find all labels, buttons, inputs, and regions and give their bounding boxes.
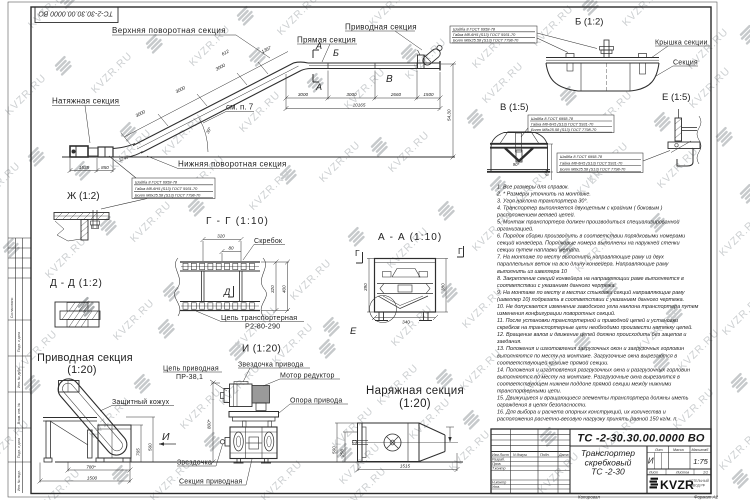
svg-text:N докум.: N докум. [513,453,528,457]
svg-text:KVZR.RU: KVZR.RU [111,297,157,343]
svg-text:KVZR.RU: KVZR.RU [237,89,283,135]
svg-text:Транспортер: Транспортер [581,448,635,458]
svg-text:KVZR.RU: KVZR.RU [160,112,206,158]
svg-text:KVZR.RU: KVZR.RU [687,65,733,111]
svg-text:KVZR.RU: KVZR.RU [720,292,750,338]
svg-text:1500: 1500 [87,476,98,481]
svg-text:Секция приводная: Секция приводная [179,479,242,486]
svg-text:Натяжная секция: Натяжная секция [52,97,119,106]
svg-text:скребков на транспортерные цеп: скребков на транспортерные цепи необходи… [497,324,693,331]
svg-text:3. Угол наклона транспортера: 3. Угол наклона транспортера 30°. [497,198,588,204]
svg-text:Защитный кожух: Защитный кожух [112,398,170,406]
svg-text:параллельных веток на всю длин: параллельных веток на всю длину конвейер… [497,261,669,268]
svg-text:И: И [648,457,654,466]
svg-text:Наряжная секция: Наряжная секция [366,385,464,397]
svg-text:Шайба 8 ГОСТ 6958-78: Шайба 8 ГОСТ 6958-78 [560,154,603,159]
svg-text:KVZR.RU: KVZR.RU [0,160,23,206]
svg-text:Масса: Масса [673,448,684,452]
svg-text:(1:20): (1:20) [399,398,431,410]
svg-text:16. Для выбора и расчета опор: 16. Для выбора и расчета опорных констру… [497,409,666,416]
svg-text:Т.контр: Т.контр [492,467,506,471]
svg-text:Листов: Листов [675,471,689,475]
svg-text:Д - Д (1:2): Д - Д (1:2) [50,278,102,289]
svg-text:Верхняя поворотная секция: Верхняя поворотная секция [112,26,226,35]
svg-text:Б: Б [333,48,339,58]
svg-text:Взам. инв. №: Взам. инв. № [17,403,21,424]
svg-text:11. После установки транспорт: 11. После установки транспортерной и при… [497,317,678,324]
svg-text:15. Движущиеся и вращающиеся: 15. Движущиеся и вращающиеся элементы тр… [497,396,689,402]
svg-text:Нижняя поворотная секция: Нижняя поворотная секция [178,160,287,169]
svg-text:54.30: 54.30 [447,109,452,121]
svg-text:Е: Е [350,326,357,337]
svg-text:Болт М8х25.58 (S13) ГОСТ 7798-: Болт М8х25.58 (S13) ГОСТ 7798-70 [453,38,519,43]
svg-text:Приводная секция: Приводная секция [345,23,417,32]
svg-text:выполняются по месту на монтаж: выполняются по месту на монтаже. Разгруз… [497,374,680,380]
svg-text:2660: 2660 [390,92,402,97]
svg-text:65*: 65* [545,169,550,176]
svg-text:А - А (1:10): А - А (1:10) [378,232,442,243]
svg-text:780*: 780* [86,465,96,470]
svg-text:Звездочка: Звездочка [177,460,212,467]
svg-text:Секция: Секция [673,60,698,67]
svg-text:организацией.: организацией. [497,226,534,233]
svg-text:Р2-80-290: Р2-80-290 [245,322,280,331]
svg-text:KVZR.RU: KVZR.RU [43,235,89,281]
svg-text:320: 320 [217,234,225,239]
svg-text:KVZR.RU: KVZR.RU [0,418,32,464]
svg-text:KVZR.RU: KVZR.RU [447,428,493,474]
svg-text:Болт М8х25.58 (S13) ГОСТ 7798-: Болт М8х25.58 (S13) ГОСТ 7798-70 [560,167,626,172]
svg-text:секций конвейера. Порядковые н: секций конвейера. Порядковые номера выпо… [497,240,680,247]
svg-text:2. * Размеры уточнить на монт: 2. * Размеры уточнить на монтаже. [496,191,591,197]
svg-text:3000: 3000 [215,62,227,71]
svg-text:320: 320 [270,285,275,293]
svg-text:Г - Г (1:10): Г - Г (1:10) [206,216,269,227]
svg-text:KVZR.RU: KVZR.RU [717,427,750,473]
svg-text:ограждения в целях безопасност: ограждения в целях безопасности. [497,403,587,409]
svg-text:ТС-2-30.30.00.0000 ВО: ТС-2-30.30.00.0000 ВО [38,9,113,16]
svg-text:9. На монтаже по месту в мест: 9. На монтаже по месту в местах стыковки… [497,289,685,296]
svg-text:850: 850 [101,165,109,170]
svg-text:380: 380 [441,283,446,291]
svg-text:258: 258 [340,449,345,458]
svg-text:Подп. и дата: Подп. и дата [17,438,21,458]
svg-text:А: А [315,82,322,92]
svg-text:Подп. и дата: Подп. и дата [17,332,21,352]
svg-text:Г: Г [458,246,463,256]
svg-text:6. Порядок сборки производить: 6. Порядок сборки производить в соответс… [497,234,685,240]
svg-text:Цепь приводная: Цепь приводная [163,366,219,373]
svg-text:см. п. 7: см. п. 7 [226,103,254,112]
svg-text:Болт М8х25.58 (S13) ГОСТ 7798-: Болт М8х25.58 (S13) ГОСТ 7798-70 [135,193,201,198]
svg-text:Мотор редуктор: Мотор редуктор [280,373,335,380]
svg-text:ЗАВОД РФ: ЗАВОД РФ [689,484,706,488]
svg-text:Масштаб: Масштаб [692,448,710,452]
svg-text:заедания.: заедания. [496,339,522,345]
svg-text:В (1:5): В (1:5) [500,102,529,113]
svg-text:соответствии с указанием данно: соответствии с указанием данного чертежа… [497,283,616,289]
svg-text:1. Все размеры для справок.: 1. Все размеры для справок. [497,184,569,190]
svg-text:Гайка М8-6Н5 (S13) ГОСТ 5931-7: Гайка М8-6Н5 (S13) ГОСТ 5931-70 [560,160,623,165]
svg-text:Инв. № подл.: Инв. № подл. [17,470,21,491]
svg-text:KVZR.RU: KVZR.RU [655,145,701,191]
svg-text:(швеллер 10) подрезать в соот: (швеллер 10) подрезать в соответствии с … [497,297,684,303]
svg-text:Звездочка привода: Звездочка привода [238,362,304,369]
svg-text:Г: Г [355,248,360,258]
svg-text:30°: 30° [205,126,213,134]
svg-text:расположения расчетно-весовую: расположения расчетно-весовую нагрузку п… [496,416,678,423]
svg-text:KVZR.RU: KVZR.RU [671,386,717,432]
svg-text:И: И [162,431,170,443]
svg-text:400: 400 [282,285,287,293]
svg-text:1500: 1500 [423,92,434,97]
svg-text:Согласовано: Согласовано [10,297,14,318]
svg-text:390: 390 [363,283,368,291]
svg-text:90*: 90* [513,162,520,167]
svg-text:KVZR.RU: KVZR.RU [275,0,321,38]
svg-text:KVZR.RU: KVZR.RU [89,50,135,96]
svg-text:800*: 800* [207,419,212,429]
svg-text:KVZR.RU: KVZR.RU [288,257,334,303]
svg-text:KVZR.RU: KVZR.RU [37,467,83,500]
svg-text:Изм Лист: Изм Лист [492,453,509,457]
svg-text:Шайба 8 ГОСТ 6958-78: Шайба 8 ГОСТ 6958-78 [453,27,496,32]
svg-text:Е (1:5): Е (1:5) [662,92,691,103]
svg-text:Утв.: Утв. [492,485,500,489]
svg-text:Крышка секции: Крышка секции [655,40,708,47]
svg-text:612: 612 [221,48,231,56]
svg-text:14. Положения и изготовления: 14. Положения и изготовления разгрузочны… [497,367,690,373]
svg-text:Копировал: Копировал [578,495,600,500]
svg-text:10. Не допускается изменение з: 10. Не допускается изменение заводского … [497,304,699,310]
svg-text:Гайка М8-6Н5 (S13) ГОСТ 5931-7: Гайка М8-6Н5 (S13) ГОСТ 5931-70 [135,186,198,191]
svg-text:Формат А2: Формат А2 [694,495,719,500]
svg-text:Опора привода: Опора привода [290,398,342,405]
svg-text:ТС -2-30.30.00.0000 ВО: ТС -2-30.30.00.0000 ВО [577,433,705,445]
svg-text:транспортерными цепи.: транспортерными цепи. [497,389,561,395]
svg-text:соответствующем нижнем поддоне: соответствующем нижнем поддоне прямой се… [497,380,671,387]
svg-text:И (1:20): И (1:20) [242,344,281,355]
svg-text:560: 560 [332,446,337,454]
svg-text:выполнить из швеллера 10: выполнить из швеллера 10 [497,269,567,275]
svg-text:В: В [386,74,393,85]
svg-text:KVZR.RU: KVZR.RU [717,213,750,259]
svg-text:(1:20): (1:20) [67,364,96,376]
svg-text:3000: 3000 [298,92,309,97]
svg-text:Подп.: Подп. [540,453,550,457]
svg-text:Н.контр: Н.контр [492,481,506,485]
svg-text:Дата: Дата [558,453,568,457]
svg-text:KVZR.RU: KVZR.RU [389,303,435,349]
svg-text:Прямая секция: Прямая секция [297,36,356,45]
svg-text:Шайба 8 ГОСТ 6958-78: Шайба 8 ГОСТ 6958-78 [135,180,178,185]
svg-text:KVZR.RU: KVZR.RU [386,129,432,175]
svg-text:3000: 3000 [135,109,147,118]
svg-text:Пров.: Пров. [492,462,501,466]
svg-text:KVZR.RU: KVZR.RU [620,0,666,29]
svg-text:560: 560 [148,443,153,451]
svg-text:Б (1:2): Б (1:2) [575,17,603,28]
svg-text:Гайка М8-6Н5 (S13) ГОСТ 5931-7: Гайка М8-6Н5 (S13) ГОСТ 5931-70 [453,32,516,37]
svg-text:1515: 1515 [400,464,411,469]
svg-text:80: 80 [228,246,234,251]
svg-text:1/1: 1/1 [703,471,708,475]
svg-text:7. На монтаже по месту выполн: 7. На монтаже по месту выполнить направл… [497,255,664,261]
svg-text:Лит.: Лит. [654,448,663,452]
svg-text:KVZR.RU: KVZR.RU [3,72,49,118]
svg-text:340: 340 [402,320,410,325]
svg-text:Разраб.: Разраб. [492,458,505,462]
svg-text:Ж (1:2): Ж (1:2) [67,191,100,202]
svg-text:KVZR.RU: KVZR.RU [178,386,224,432]
svg-text:4. Транспортер выполняется дв: 4. Транспортер выполняется двухцепным с … [497,204,663,211]
svg-text:12. Вращение валов и движение: 12. Вращение валов и движение цепей долж… [497,331,686,338]
svg-text:1535: 1535 [79,165,90,170]
svg-text:Болт М8х25.58 (S13) ГОСТ 7798-: Болт М8х25.58 (S13) ГОСТ 7798-70 [531,127,597,132]
svg-text:10165: 10165 [353,103,366,108]
svg-text:Гайка М8-6Н5 (S13) ГОСТ 5931-7: Гайка М8-6Н5 (S13) ГОСТ 5931-70 [531,121,594,126]
svg-text:ПР-38,1: ПР-38,1 [176,374,203,381]
svg-text:КОТЕЛЬНЫЙ: КОТЕЛЬНЫЙ [689,479,710,483]
svg-text:Лист: Лист [648,471,658,475]
svg-text:KVZR.RU: KVZR.RU [480,60,526,106]
svg-text:Инв. № дубл.: Инв. № дубл. [17,367,21,388]
svg-text:ТС -2-30: ТС -2-30 [591,467,625,477]
svg-text:расположением ветвей цепей.: расположением ветвей цепей. [496,212,575,219]
svg-text:выполняются по месту на монтаж: выполняются по месту на монтаже. Загрузо… [497,353,677,359]
svg-text:Приводная секция: Приводная секция [37,352,133,364]
svg-text:5. Монтаж транспортера должен: 5. Монтаж транспортера должен производит… [497,219,680,226]
svg-text:Скребок: Скребок [254,237,283,245]
svg-text:изменения конфигурации поворот: изменения конфигурации поворотных секций… [497,310,615,317]
svg-text:8. Закрепление секций конвейе: 8. Закрепление секций конвейера на напра… [497,275,684,282]
svg-text:Д: Д [223,287,231,297]
svg-text:KVZR.RU: KVZR.RU [317,139,363,185]
svg-text:3000: 3000 [346,92,357,97]
svg-text:13. Положения и изготовления з: 13. Положения и изготовления загрузочных… [497,346,684,352]
svg-text:А: А [315,41,322,51]
svg-text:3000: 3000 [175,85,187,94]
svg-text:KVZR.RU: KVZR.RU [403,36,449,82]
svg-text:секции путем наплавки метала.: секции путем наплавки метала. [497,248,580,254]
svg-text:765: 765 [136,448,141,456]
svg-text:KVZR.RU: KVZR.RU [128,199,174,245]
svg-text:1:75: 1:75 [693,457,708,466]
svg-text:Шайба 8 ГОСТ 6958-78: Шайба 8 ГОСТ 6958-78 [531,116,574,121]
svg-text:соответствующей крышке прямой: соответствующей крышке прямой секции. [497,359,609,366]
